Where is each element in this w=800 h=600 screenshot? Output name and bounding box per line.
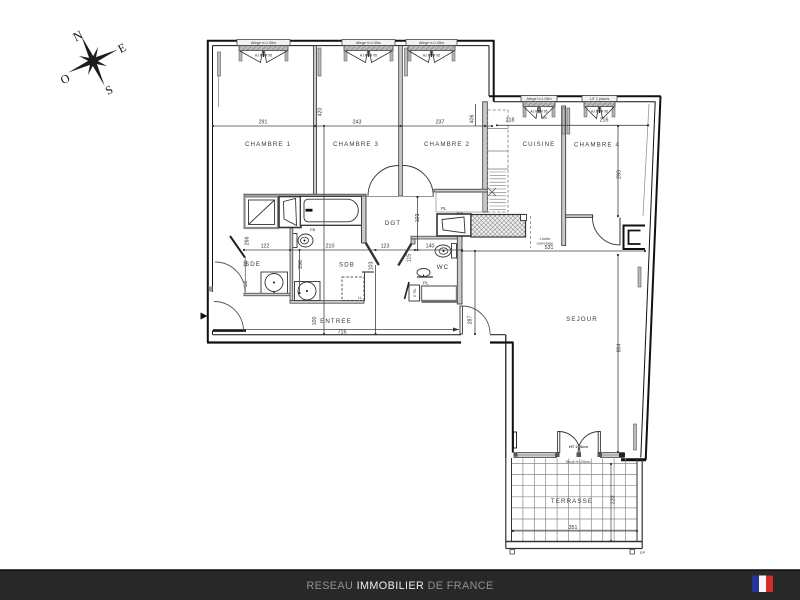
svg-text:CHAMBRE 3: CHAMBRE 3: [333, 141, 379, 148]
svg-text:SDB: SDB: [339, 262, 355, 269]
svg-text:291: 291: [259, 120, 268, 126]
svg-text:420: 420: [318, 108, 324, 117]
svg-text:Allege h=1.05m: Allege h=1.05m: [419, 41, 444, 45]
svg-text:100: 100: [312, 317, 318, 326]
svg-text:RESEAU IMMOBILIER DE FRANCE: RESEAU IMMOBILIER DE FRANCE: [306, 580, 493, 592]
svg-text:carrelage: carrelage: [537, 241, 554, 246]
svg-text:CHAMBRE 1: CHAMBRE 1: [245, 141, 291, 148]
svg-text:EP: EP: [640, 550, 646, 555]
svg-text:Seuil H=20cm: Seuil H=20cm: [565, 459, 591, 464]
svg-text:237: 237: [436, 120, 445, 126]
svg-text:296: 296: [298, 260, 304, 269]
svg-text:Allege h=1.05m: Allege h=1.05m: [251, 41, 276, 45]
svg-text:Allege h=1.05m: Allege h=1.05m: [356, 41, 381, 45]
svg-text:HT 215cm: HT 215cm: [569, 444, 588, 449]
svg-text:AJ.PMR 95: AJ.PMR 95: [255, 54, 272, 58]
svg-text:351: 351: [569, 525, 578, 531]
svg-text:122: 122: [261, 244, 270, 250]
svg-text:PB: PB: [310, 227, 316, 232]
svg-text:LIT 2 places: LIT 2 places: [590, 97, 610, 101]
svg-text:103: 103: [415, 214, 421, 223]
svg-text:AJ.PMR 95: AJ.PMR 95: [360, 54, 377, 58]
svg-text:243: 243: [353, 120, 362, 126]
svg-text:216: 216: [600, 118, 609, 124]
svg-text:140: 140: [426, 244, 435, 250]
svg-text:LL: LL: [358, 296, 362, 300]
svg-text:SDE: SDE: [245, 261, 261, 268]
svg-text:Allege h=1.05m: Allege h=1.05m: [526, 97, 551, 101]
svg-text:CB: CB: [541, 115, 547, 120]
svg-text:DGT: DGT: [385, 220, 401, 227]
svg-text:CHAMBRE 2: CHAMBRE 2: [424, 141, 470, 148]
svg-text:103: 103: [369, 262, 375, 271]
svg-text:ENTREE: ENTREE: [320, 318, 352, 325]
svg-text:AJ.PMR 95: AJ.PMR 95: [423, 54, 440, 58]
svg-text:CHAMBRE 4: CHAMBRE 4: [574, 142, 620, 149]
svg-text:218: 218: [506, 118, 515, 124]
svg-text:WC: WC: [437, 264, 450, 271]
svg-text:E TEL: E TEL: [413, 288, 417, 297]
svg-text:PL: PL: [423, 281, 429, 286]
svg-text:PL: PL: [441, 206, 447, 211]
svg-text:716: 716: [338, 330, 347, 336]
svg-text:266: 266: [245, 237, 251, 246]
svg-text:SEJOUR: SEJOUR: [566, 316, 598, 323]
svg-text:AJ.PMR 95: AJ.PMR 95: [591, 110, 608, 114]
svg-text:AJ.PMR 95: AJ.PMR 95: [530, 110, 547, 114]
svg-text:604: 604: [617, 344, 623, 353]
svg-text:TERRASSE: TERRASSE: [551, 498, 593, 505]
svg-text:115: 115: [407, 254, 413, 262]
svg-text:220: 220: [611, 496, 617, 505]
svg-text:287: 287: [468, 316, 474, 325]
svg-text:210: 210: [326, 244, 335, 250]
svg-text:406: 406: [470, 115, 476, 124]
svg-text:123: 123: [381, 244, 390, 250]
svg-text:531: 531: [545, 245, 554, 251]
svg-text:CUISINE: CUISINE: [523, 141, 556, 148]
svg-text:293: 293: [617, 170, 623, 179]
